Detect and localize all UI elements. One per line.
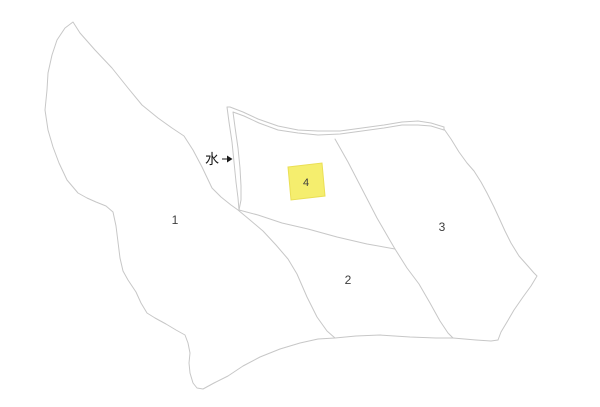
parcel-4-label: 4 <box>303 177 309 189</box>
parcel-2-label: 2 <box>345 273 352 287</box>
cadastral-map: 1 2 3 4 水 <box>0 0 600 407</box>
water-annotation-label: 水 <box>205 151 219 167</box>
map-background <box>0 0 600 407</box>
parcel-3-label: 3 <box>439 220 446 234</box>
map-canvas: 1 2 3 4 水 <box>0 0 600 407</box>
parcel-1-label: 1 <box>172 213 179 227</box>
